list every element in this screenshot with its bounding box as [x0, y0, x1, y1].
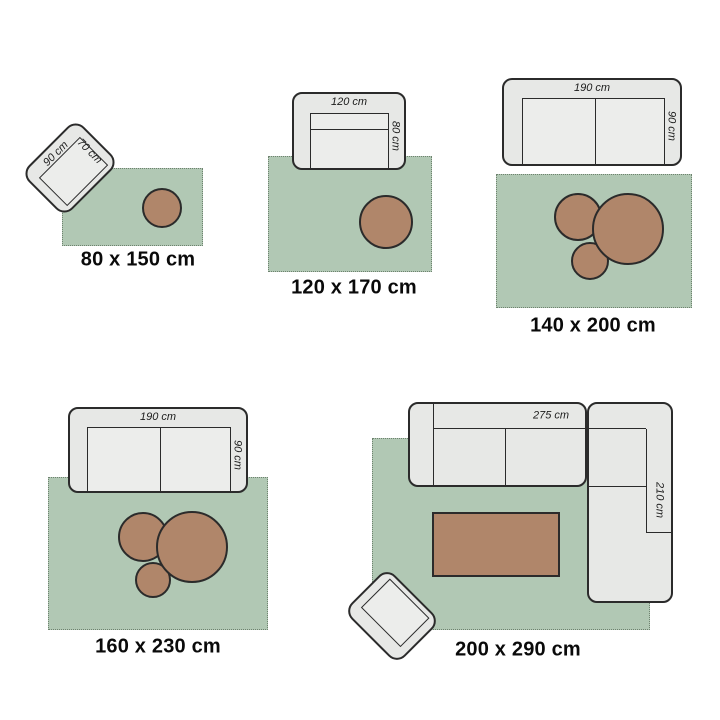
rug-size-label: 200 x 290 cm: [455, 639, 581, 662]
round-pouf: [359, 195, 413, 249]
rug-size-label: 80 x 150 cm: [81, 249, 196, 272]
dimension-depth-label: 210 cm: [653, 482, 666, 518]
sofa-seat: [522, 98, 665, 164]
two-seater-sofa: 190 cm 90 cm: [68, 407, 248, 493]
rug-size-label: 120 x 170 cm: [291, 277, 417, 300]
round-pouf-large: [156, 511, 228, 583]
dimension-depth-label: 90 cm: [665, 111, 678, 141]
sofa-seat: [87, 427, 231, 491]
back-cushion-line: [310, 129, 389, 130]
round-pouf: [142, 188, 182, 228]
dimension-depth-label: 90 cm: [231, 440, 244, 470]
armchair-seat: [310, 113, 389, 168]
coffee-table: [432, 512, 560, 577]
seat-divider-line: [595, 98, 596, 164]
armchair: 120 cm 80 cm: [292, 92, 406, 170]
two-seater-sofa: 190 cm 90 cm: [502, 78, 682, 166]
armrest-line: [433, 404, 434, 485]
rug-size-label: 140 x 200 cm: [530, 315, 656, 338]
dimension-width-label: 275 cm: [533, 410, 569, 423]
corner-seat-line: [589, 486, 646, 487]
dimension-width-label: 190 cm: [504, 82, 680, 95]
backrest-line: [434, 428, 646, 429]
round-pouf-large: [592, 193, 664, 265]
dimension-depth-label: 80 cm: [389, 121, 402, 151]
rug-size-label: 160 x 230 cm: [95, 636, 221, 659]
dimension-width-label: 190 cm: [70, 411, 246, 424]
backrest-end-line: [647, 532, 672, 533]
rug-size-comparison-diagram: 90 cm 70 cm 80 x 150 cm 120 cm 80 cm 120…: [0, 0, 720, 720]
chaise-seat-line: [646, 429, 647, 533]
seat-divider-line: [505, 429, 506, 486]
seat-divider-line: [160, 427, 161, 491]
dimension-width-label: 120 cm: [294, 96, 404, 109]
